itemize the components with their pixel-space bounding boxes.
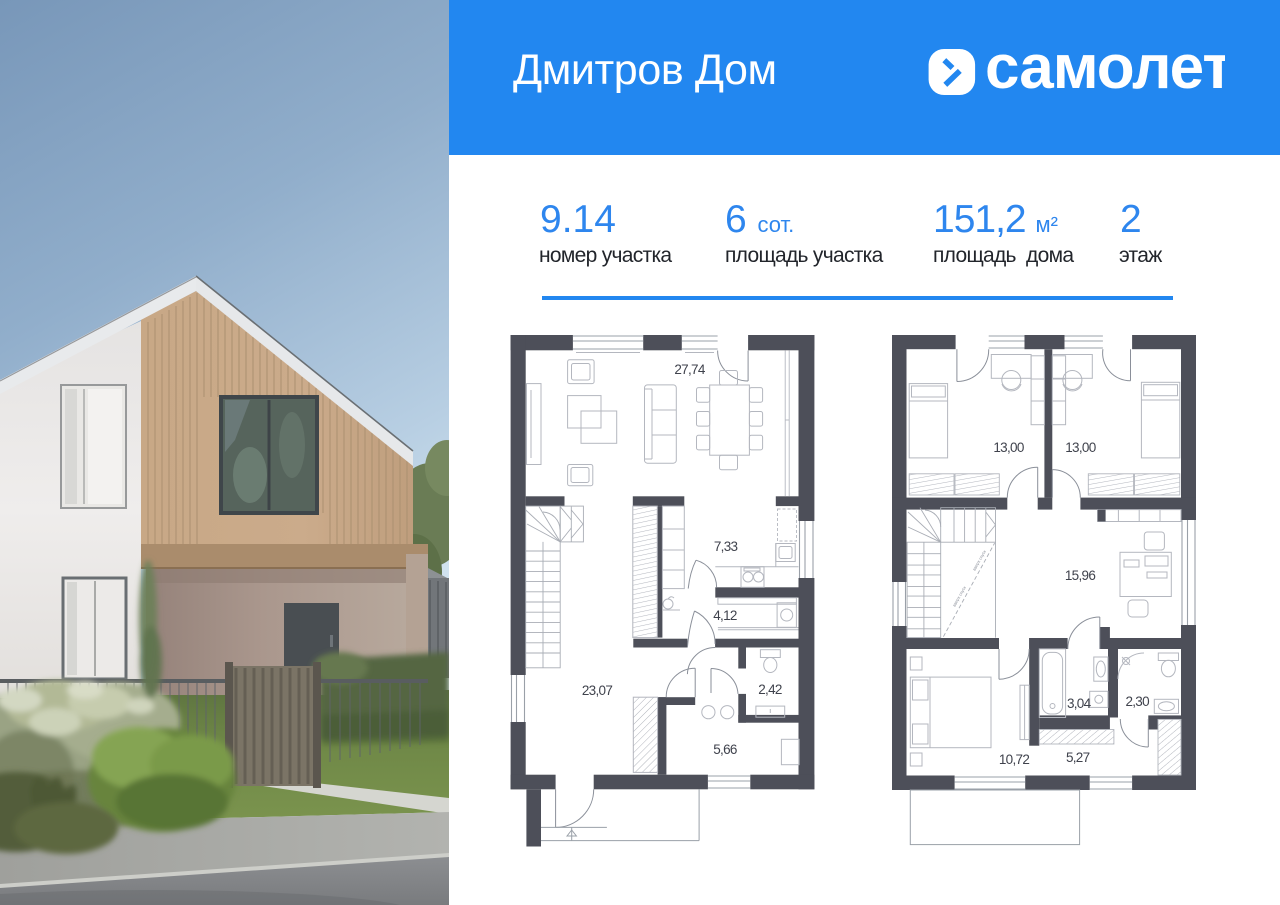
svg-text:13,00: 13,00 <box>993 440 1023 455</box>
svg-text:вверх спуск: вверх спуск <box>972 549 987 571</box>
svg-text:27,74: 27,74 <box>674 362 705 377</box>
svg-text:23,07: 23,07 <box>582 683 612 698</box>
svg-text:2,30: 2,30 <box>1125 694 1149 709</box>
svg-text:10,72: 10,72 <box>999 752 1029 767</box>
svg-text:вверх спуск: вверх спуск <box>952 585 967 607</box>
svg-text:4,12: 4,12 <box>713 608 737 623</box>
svg-text:7,33: 7,33 <box>714 539 738 554</box>
svg-text:15,96: 15,96 <box>1065 568 1095 583</box>
svg-text:5,27: 5,27 <box>1066 750 1090 765</box>
svg-text:5,66: 5,66 <box>713 742 737 757</box>
svg-text:3,04: 3,04 <box>1067 696 1092 711</box>
svg-text:13,00: 13,00 <box>1065 440 1095 455</box>
svg-text:2,42: 2,42 <box>758 682 782 697</box>
svg-text:самолет: самолет <box>985 42 1225 102</box>
